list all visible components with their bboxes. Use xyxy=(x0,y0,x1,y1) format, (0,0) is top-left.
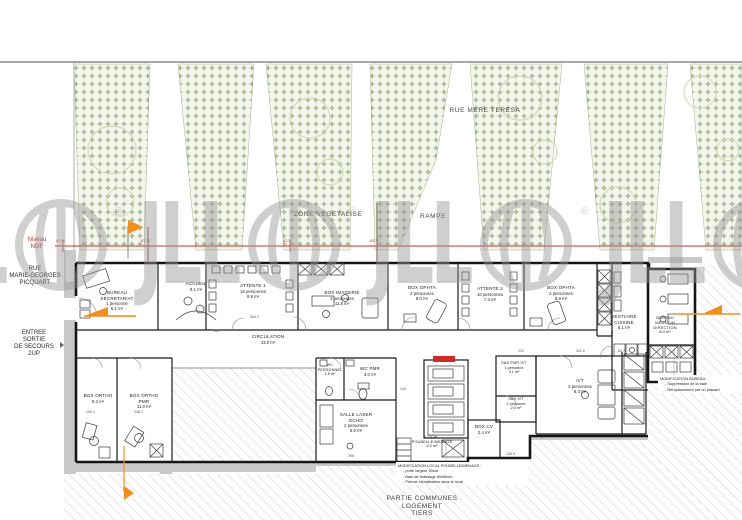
dimension: 246.1 xyxy=(134,410,143,414)
niveau-ngf-label: NiveauNGF xyxy=(18,237,56,251)
room-label-bureau-secretariat: BUREAU SECRETARIAT1 personne6.1 m² xyxy=(90,290,144,311)
room-label-sas-pmr-ivt: SAS PMR IVT1 personne3.1 m² xyxy=(495,361,533,375)
room-label-vestiaire-cuisine: VESTIAIRE CUISINE8.1 m² xyxy=(606,314,642,330)
entrance-opening xyxy=(63,298,77,320)
room-label-bureau-medecin: BUREAU MEDECIN DIRECTION8.0 m² xyxy=(648,316,682,335)
level-value: 63.71 xyxy=(283,239,292,243)
fire-door-marker xyxy=(433,356,455,362)
level-value: 64.26 xyxy=(56,239,65,243)
dimension: 364.1 xyxy=(250,315,259,319)
room-label-accueil: ACCUEIL9.1 m² xyxy=(176,281,216,292)
room-label-local-poubelle: LOCAL POUBELLE/MENAGE4.2 m² xyxy=(407,435,457,449)
room-label-box-imagerie: BOX IMAGERIE2 personnes11.8 m² xyxy=(317,290,367,306)
dimension: 311.6 xyxy=(576,349,585,353)
exit-arrow-icon xyxy=(60,342,64,348)
dimension: 126.5 xyxy=(506,452,515,456)
room-label-sas-ivt: SAS IVT1 personne2.0 m² xyxy=(498,397,534,411)
note-modification-local: MODIFICATION LOCAL POUBELLE/MENAGE : - p… xyxy=(396,462,528,485)
zone-vegetalise-label: ZONE VEGETALISE xyxy=(268,211,388,219)
dimension: 224 xyxy=(518,349,524,353)
street-label-top: RUE MERE TERESA xyxy=(430,107,540,115)
room-label-wc-pmr: WC PMR3.0 m² xyxy=(353,366,387,377)
floor-plan-page: RUE MERE TERESA ZONE VEGETALISE RAMPE Ni… xyxy=(0,0,742,520)
dimension: 140 xyxy=(400,387,406,391)
room-label-circulation: CIRCULATION43.0 m² xyxy=(243,334,293,345)
dimension: 298 xyxy=(348,454,354,458)
level-value: 63.72 xyxy=(141,239,150,243)
dimension: 194.1 xyxy=(86,410,95,414)
room-label-box-ophta1: BOX OPHTA2 personnes8.0 m² xyxy=(400,285,444,301)
emergency-exit-label: ENTREE SORTIE DE SECOURS 2UP xyxy=(8,330,60,358)
rampe-label: RAMPE xyxy=(408,213,458,221)
room-label-box-ortho: BOX ORTHO8.2 m² xyxy=(83,393,113,404)
room-label-attente2: ATTENTE 210 personnes7.4 m² xyxy=(468,286,512,302)
room-label-salle-laser-echo: SALLE LASER ECHO2 personnes6.9 m² xyxy=(336,412,376,433)
dimension: 337 xyxy=(214,329,220,333)
dimension: 84.7 xyxy=(618,349,625,353)
vegetation-zones xyxy=(74,64,742,250)
street-label-left: RUE MARIE-GEORGES PICQUART xyxy=(0,266,70,287)
note-modification-bureau: MODIFICATION BUREAU : - Suppression de l… xyxy=(658,375,742,393)
room-label-box-cv: BOX CV2.4 m² xyxy=(469,424,499,435)
floor-plan-canvas xyxy=(0,0,742,520)
partie-communes-label: PARTIE COMMUNESLOGEMENTTIERS xyxy=(362,495,482,518)
room-label-box-ortho-pmr: BOX ORTHO PMR11.0 m² xyxy=(124,393,164,409)
room-label-ivt: IVT2 personnes8.3 m² xyxy=(558,378,602,394)
room-label-attente1: ATTENTE 115 personnes9.9 m² xyxy=(230,283,276,299)
level-value: 63.77 xyxy=(370,239,379,243)
room-label-wc-personnel: WC PERSONNEL1.6 m² xyxy=(315,363,345,377)
room-label-box-ophta2: BOX OPHTA2 personnes8.9 m² xyxy=(539,285,583,301)
